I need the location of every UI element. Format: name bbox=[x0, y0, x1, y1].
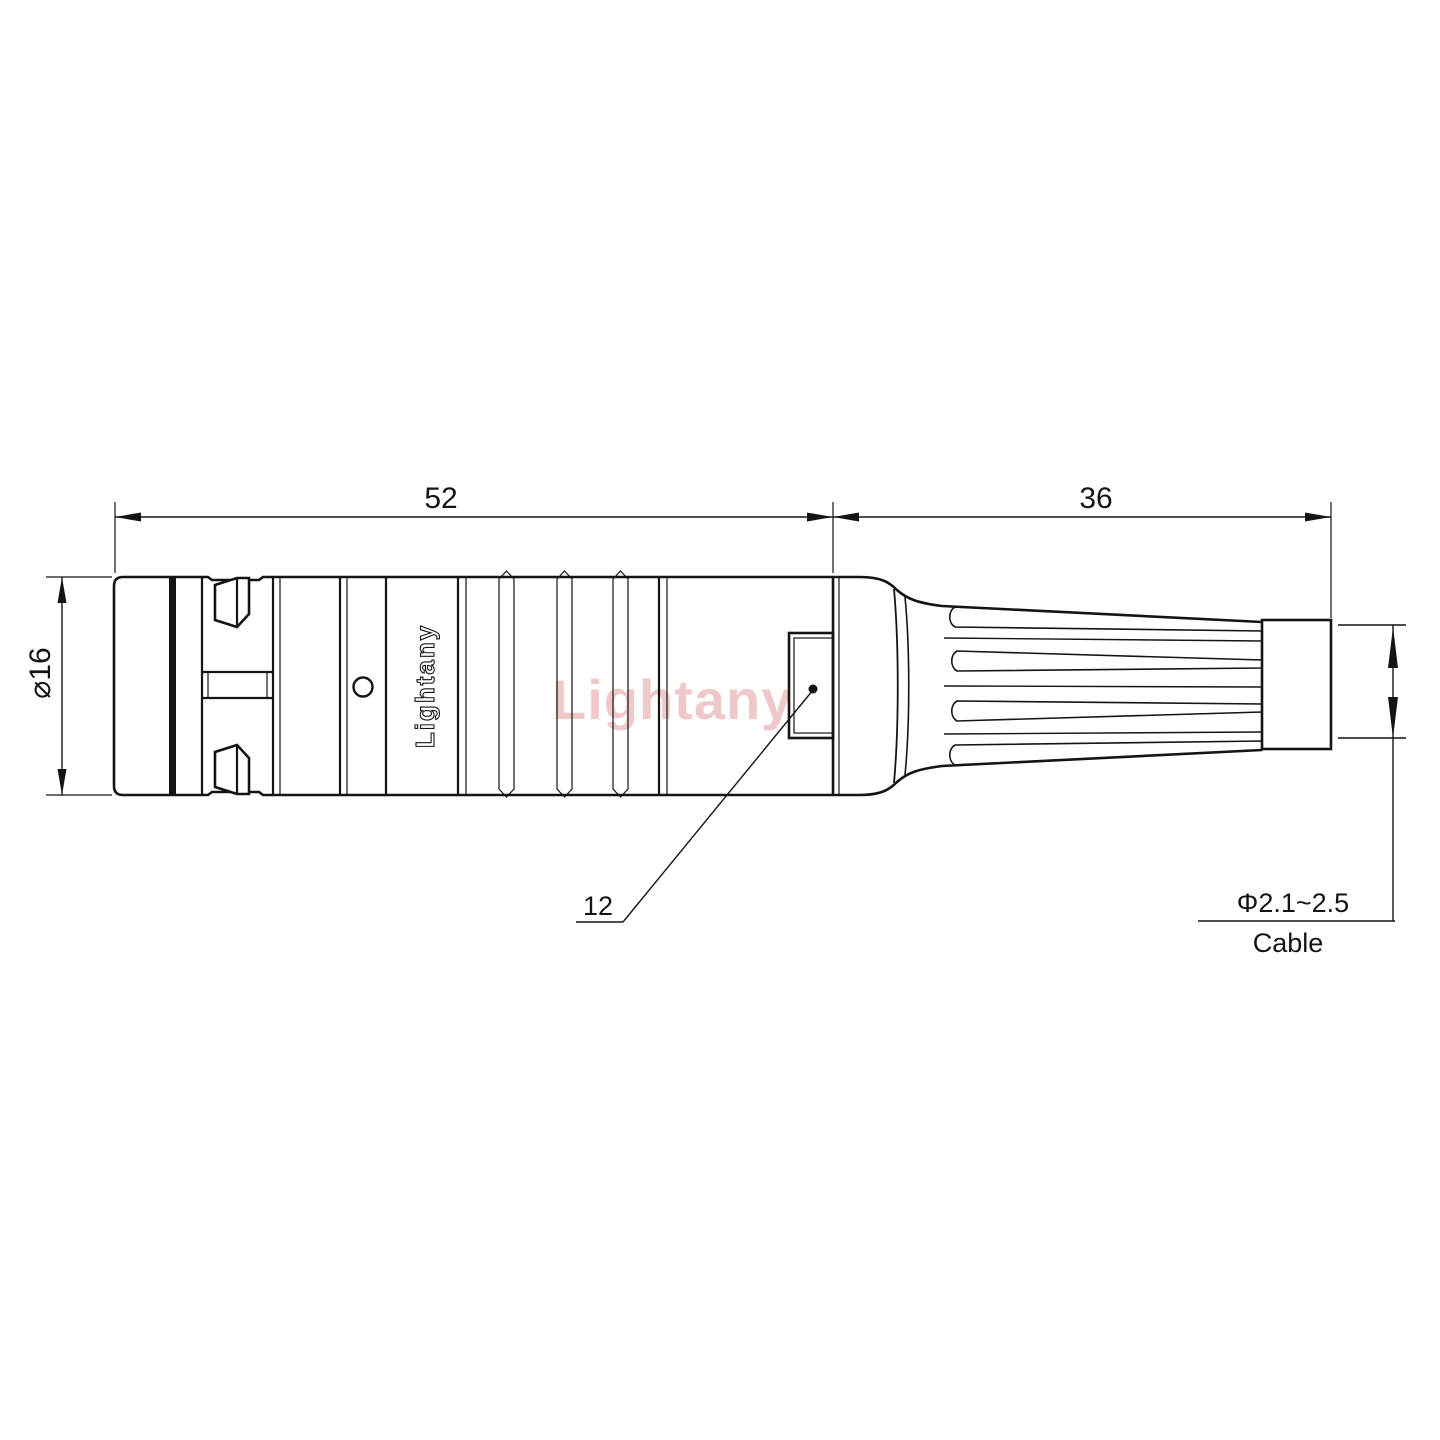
latch-key-bottom bbox=[215, 745, 249, 794]
dimension-52: 52 bbox=[115, 482, 833, 573]
brand-band: Lightany bbox=[410, 577, 466, 795]
latch-key-top bbox=[215, 578, 249, 627]
connector-technical-drawing: Lightany bbox=[0, 0, 1440, 1440]
plug-nose bbox=[114, 577, 176, 795]
dimension-cable-dia: Φ2.1~2.5 Cable bbox=[1198, 625, 1406, 958]
body-outline-top bbox=[176, 577, 833, 580]
cable-label: Cable bbox=[1253, 928, 1324, 958]
vent-hole bbox=[354, 678, 373, 697]
watermark-text: Lightany bbox=[552, 668, 793, 731]
window-center-dot bbox=[809, 685, 818, 694]
retention-bar bbox=[169, 577, 176, 795]
strain-relief bbox=[944, 607, 1262, 765]
collar-ring bbox=[340, 577, 386, 795]
brand-text: Lightany bbox=[410, 624, 440, 748]
dimension-dia16: ⌀16 bbox=[24, 577, 112, 795]
dim-52-value: 52 bbox=[424, 482, 457, 515]
technical-drawing-page: Lightany bbox=[0, 0, 1440, 1440]
knurl-ring-1 bbox=[499, 571, 514, 797]
label-12-value: 12 bbox=[583, 891, 613, 921]
rear-shell bbox=[789, 577, 839, 795]
dim-dia16-value: ⌀16 bbox=[24, 647, 57, 698]
cable-diameter-range: Φ2.1~2.5 bbox=[1237, 888, 1349, 918]
dim-36-value: 36 bbox=[1079, 482, 1112, 515]
cable-end-sleeve bbox=[1262, 620, 1331, 749]
